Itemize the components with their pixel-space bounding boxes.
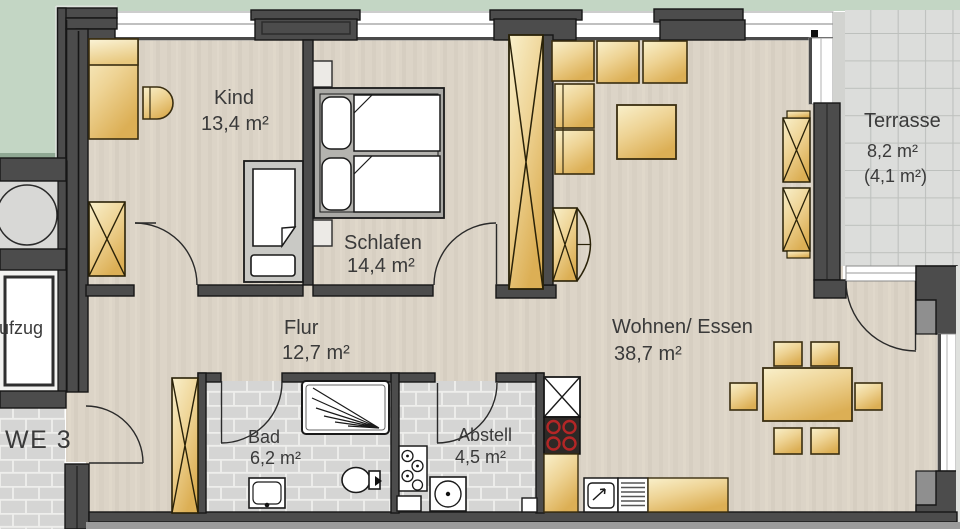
svg-text:Kind: Kind — [214, 87, 254, 109]
svg-text:8,2 m²: 8,2 m² — [867, 141, 918, 161]
svg-text:Abstell: Abstell — [458, 425, 512, 445]
svg-text:WE 3: WE 3 — [5, 426, 72, 454]
svg-text:Wohnen/ Essen: Wohnen/ Essen — [612, 316, 753, 338]
svg-text:Bad: Bad — [248, 427, 280, 447]
svg-text:Flur: Flur — [284, 317, 319, 339]
svg-text:12,7 m²: 12,7 m² — [282, 342, 350, 364]
svg-text:6,2 m²: 6,2 m² — [250, 448, 301, 468]
svg-text:(4,1 m²): (4,1 m²) — [864, 166, 927, 186]
svg-text:Aufzug: Aufzug — [0, 318, 43, 338]
svg-text:14,4 m²: 14,4 m² — [347, 255, 415, 277]
svg-text:38,7 m²: 38,7 m² — [614, 343, 682, 365]
svg-text:4,5 m²: 4,5 m² — [455, 447, 506, 467]
svg-text:13,4 m²: 13,4 m² — [201, 113, 269, 135]
svg-text:Terrasse: Terrasse — [864, 110, 941, 132]
svg-text:Schlafen: Schlafen — [344, 232, 422, 254]
